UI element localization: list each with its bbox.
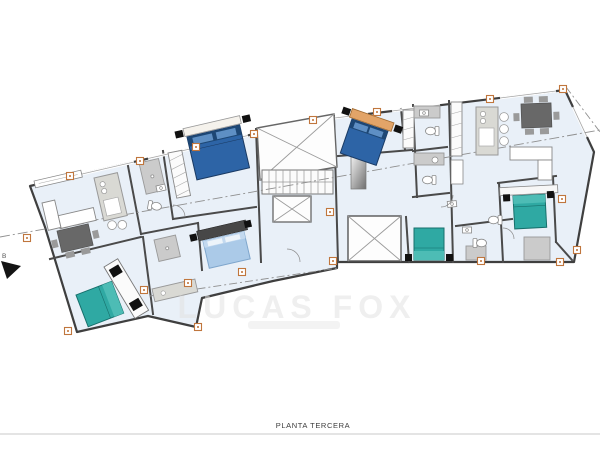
floorplan-canvas: LUCAS FOX B PLANTA TERCERA: [0, 0, 600, 450]
elevator: [273, 196, 311, 222]
plan-title: PLANTA TERCERA: [276, 421, 350, 430]
entrance-arrow-label: B: [2, 253, 6, 260]
closet-gradient: [351, 157, 366, 189]
arrow-icon: [1, 261, 21, 279]
entrance-arrow: B: [1, 253, 21, 279]
watermark-brand: LUCAS FOX: [178, 289, 417, 325]
patio-shaft: [348, 216, 401, 261]
stairs: [262, 170, 333, 194]
footer: PLANTA TERCERA: [0, 421, 600, 434]
watermark: LUCAS FOX: [178, 289, 417, 329]
watermark-tagline-blur: [248, 321, 340, 329]
floorplan-svg: LUCAS FOX B PLANTA TERCERA: [0, 0, 600, 450]
wardrobe-hatched-2: [403, 110, 414, 148]
wardrobe-hatched-3: [451, 102, 463, 184]
